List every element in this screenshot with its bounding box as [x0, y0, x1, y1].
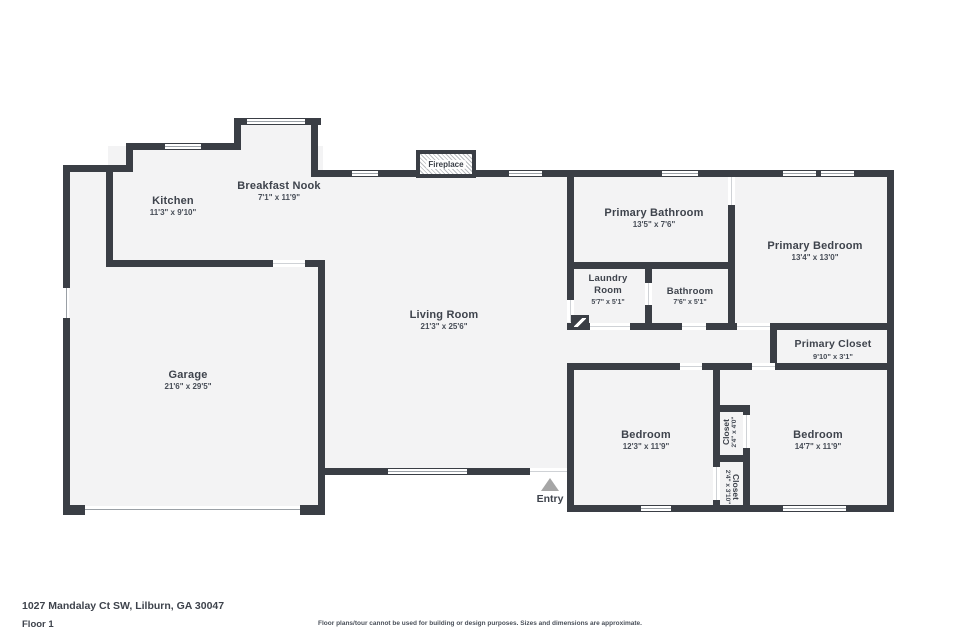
wall-segment [713, 500, 720, 512]
room-label-garage: Garage 21'6" x 29'5" [165, 368, 212, 393]
room-name: Primary Closet [795, 338, 872, 352]
disclaimer-text: Floor plans/tour cannot be used for buil… [318, 620, 642, 627]
window [821, 171, 854, 176]
property-address: 1027 Mandalay Ct SW, Lilburn, GA 30047 [22, 600, 224, 612]
wall-segment [63, 165, 70, 288]
window [352, 171, 378, 176]
room-label-living-room: Living Room 21'3" x 25'6" [410, 308, 479, 333]
room-dims: 7'6" x 5'1" [667, 298, 713, 307]
fireplace-label: Fireplace [426, 160, 465, 169]
room-dims: 21'3" x 25'6" [410, 322, 479, 332]
floor-plan: Real Tour South Metro Photography [0, 0, 960, 640]
room-name: Living Room [410, 308, 479, 322]
utility-fixture-icon [571, 315, 589, 330]
wall-segment [706, 323, 737, 330]
wall-segment [775, 363, 894, 370]
room-name: Kitchen [150, 194, 197, 208]
floor-label: Floor 1 [22, 619, 54, 630]
room-label-bedroom-right: Bedroom 14'7" x 11'9" [793, 428, 843, 453]
room-dims: 13'5" x 7'6" [604, 220, 703, 230]
room-dims: 9'10" x 3'1" [795, 352, 872, 362]
wall-segment [567, 177, 574, 300]
door-opening [713, 467, 720, 500]
window [247, 119, 305, 124]
wall-segment [630, 323, 682, 330]
entry-door-opening [530, 468, 567, 475]
wall-segment [318, 260, 325, 512]
room-dims: 5'7" x 5'1" [579, 298, 637, 307]
door-opening [645, 283, 652, 305]
wall-segment [770, 323, 894, 330]
wall-segment [106, 168, 113, 267]
room-label-bedroom-left: Bedroom 12'3" x 11'9" [621, 428, 671, 453]
wall-segment [567, 363, 680, 370]
door-opening [680, 363, 702, 370]
room-name: Bathroom [667, 286, 713, 298]
window [641, 506, 671, 511]
window [509, 171, 542, 176]
room-label-closet-top: Closet 2'4" x 4'0" [721, 417, 739, 448]
room-label-breakfast-nook: Breakfast Nook 7'1" x 11'9" [237, 179, 321, 204]
door-opening [752, 363, 775, 370]
room-name: Closet [731, 470, 741, 505]
room-label-primary-closet: Primary Closet 9'10" x 3'1" [795, 338, 872, 361]
entry-label: Entry [537, 493, 564, 505]
window [165, 144, 201, 149]
door-opening [737, 323, 770, 330]
room-label-primary-bedroom: Primary Bedroom 13'4" x 13'0" [767, 239, 862, 264]
room-label-primary-bathroom: Primary Bathroom 13'5" x 7'6" [604, 206, 703, 231]
door-opening [682, 323, 706, 330]
wall-segment [63, 505, 85, 515]
door-opening [743, 415, 750, 448]
room-label-bathroom: Bathroom 7'6" x 5'1" [667, 286, 713, 307]
room-name: Primary Bathroom [604, 206, 703, 220]
door-opening [728, 177, 735, 205]
window [388, 469, 467, 474]
room-dims: 2'4" x 4'0" [731, 417, 739, 448]
room-floor [237, 120, 318, 174]
room-label-laundry-room: Laundry Room 5'7" x 5'1" [579, 273, 637, 307]
window [783, 171, 816, 176]
room-dims: 14'7" x 11'9" [793, 442, 843, 452]
fireplace: Fireplace [416, 150, 476, 178]
wall-segment [63, 165, 133, 172]
room-dims: 21'6" x 29'5" [165, 382, 212, 392]
room-label-closet-bottom: Closet 2'4" x 3'10" [723, 470, 741, 505]
room-label-kitchen: Kitchen 11'3" x 9'10" [150, 194, 197, 219]
room-name: Closet [721, 417, 731, 448]
window [662, 171, 698, 176]
window [64, 288, 69, 318]
garage-door [85, 506, 300, 514]
room-name: Primary Bedroom [767, 239, 862, 253]
room-dims: 13'4" x 13'0" [767, 253, 862, 263]
wall-segment [713, 370, 720, 467]
door-opening [273, 260, 305, 267]
wall-segment [300, 505, 325, 515]
wall-segment [106, 260, 273, 267]
wall-segment [567, 363, 574, 512]
room-name: Breakfast Nook [237, 179, 321, 193]
wall-segment [567, 262, 735, 269]
room-name: Garage [165, 368, 212, 382]
wall-segment [743, 405, 750, 415]
wall-segment [63, 318, 70, 512]
wall-segment [887, 170, 894, 512]
room-name: Bedroom [621, 428, 671, 442]
door-opening [590, 323, 630, 330]
wall-segment [743, 462, 750, 512]
wall-segment [702, 363, 752, 370]
room-name: Laundry Room [579, 273, 637, 298]
room-dims: 7'1" x 11'9" [237, 193, 321, 203]
room-dims: 12'3" x 11'9" [621, 442, 671, 452]
room-name: Bedroom [793, 428, 843, 442]
window [783, 506, 846, 511]
wall-segment [311, 118, 318, 177]
entry-arrow-icon [541, 478, 559, 491]
room-dims: 11'3" x 9'10" [150, 208, 197, 218]
wall-segment [645, 269, 652, 283]
room-dims: 2'4" x 3'10" [723, 470, 731, 505]
wall-segment [713, 455, 750, 462]
